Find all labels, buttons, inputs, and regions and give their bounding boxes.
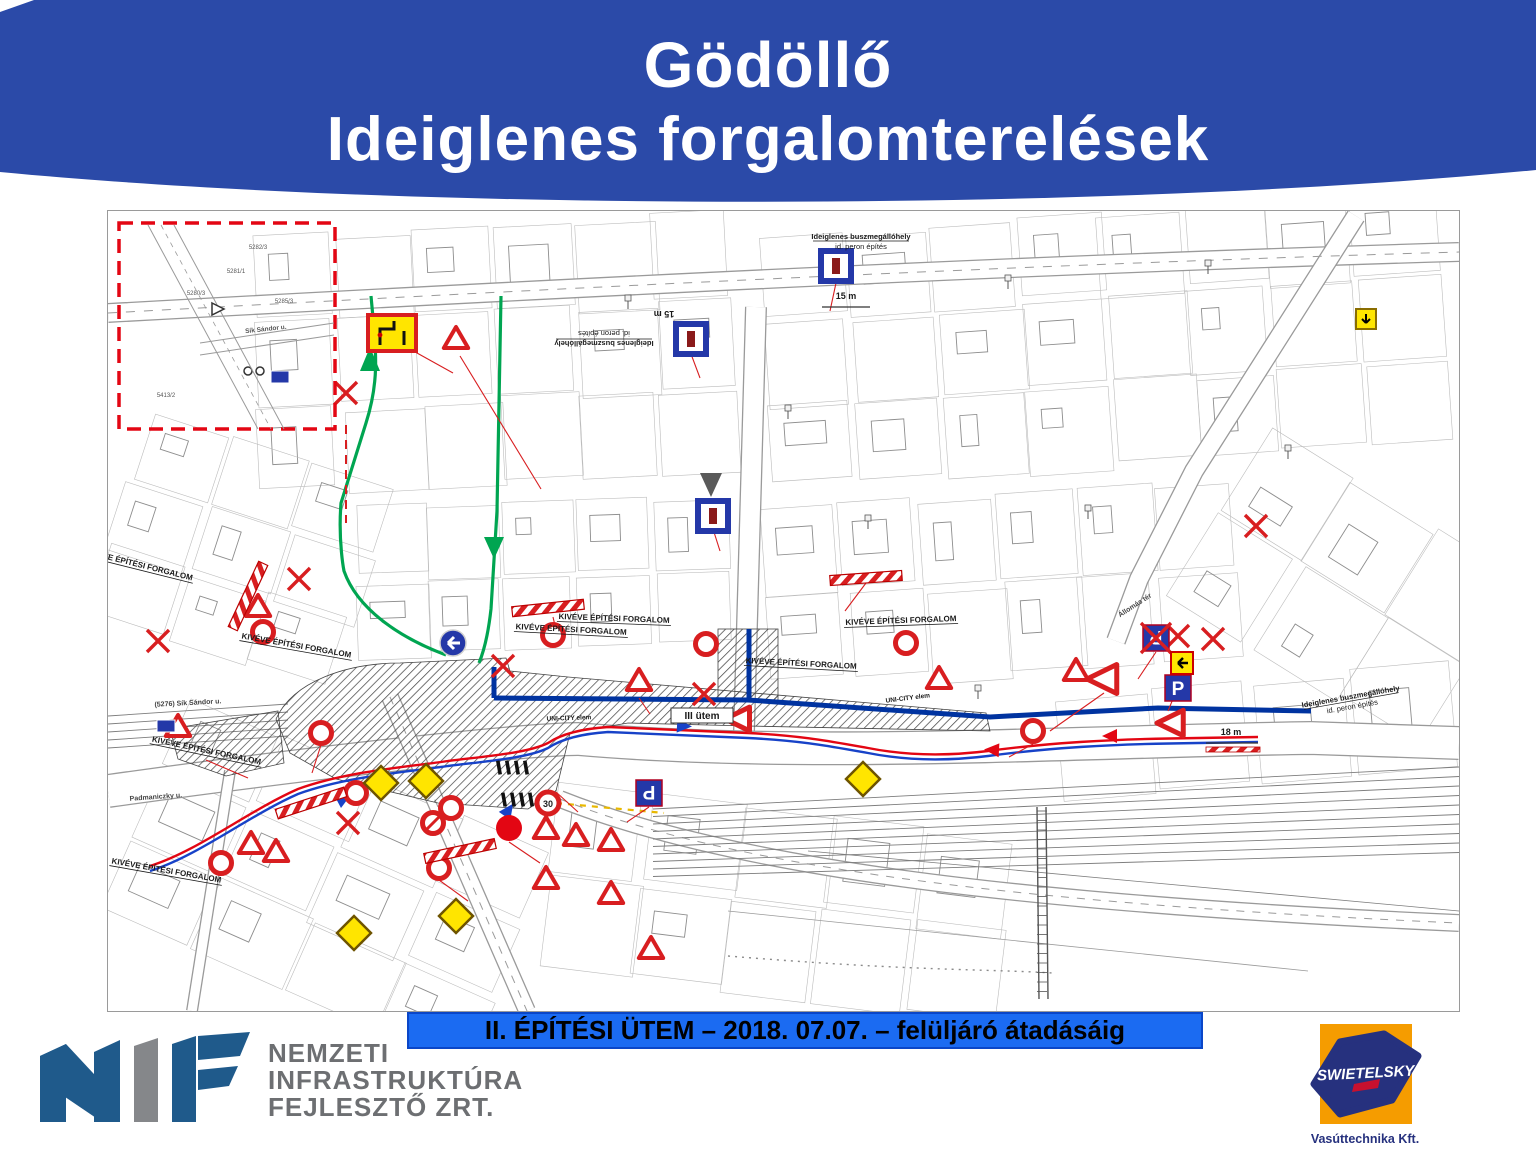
- map-rect: [579, 392, 657, 479]
- map-text: III ütem: [684, 711, 719, 722]
- road-core: [560, 799, 1459, 923]
- map-line: [1046, 807, 1048, 999]
- prohibition-ring-sign: [441, 798, 462, 819]
- inset-detail-box: [119, 223, 335, 429]
- label-unicity: UNI-CITY elem: [885, 692, 930, 704]
- closed-x-mark: [147, 630, 169, 652]
- map-line: [653, 796, 1459, 832]
- small-sign: [1285, 445, 1291, 451]
- label-parcel-number: 5285/3: [275, 299, 294, 305]
- small-sign: [1085, 505, 1091, 511]
- nif-company-name: NEMZETI INFRASTRUKTÚRA FEJLESZTŐ ZRT.: [268, 1040, 523, 1121]
- map-rect: [832, 258, 840, 274]
- map-rect: [1039, 319, 1075, 345]
- priority-road-diamond-sign: [846, 762, 880, 796]
- map-rect: [494, 305, 574, 394]
- closed-x-mark: [1167, 625, 1189, 647]
- map-rect: [212, 436, 310, 528]
- warning-triangle-sign: [564, 824, 588, 845]
- map-rect: [1282, 624, 1314, 657]
- priority-road-diamond-sign: [337, 916, 371, 950]
- map-rect: [213, 526, 241, 561]
- swietelsky-subtitle: Vasúttechnika Kft.: [1303, 1132, 1427, 1146]
- map-rect: [1109, 291, 1193, 379]
- map-rect: [501, 392, 584, 480]
- label-kiveve-epitesi-forgalom: KIVÉVE ÉPÍTÉSI FORGALOM: [844, 614, 958, 627]
- bus-stop-sign: [676, 324, 706, 354]
- map-rect: [658, 391, 741, 476]
- map-text: KIVÉVE ÉPÍTÉSI FORGALOM: [241, 631, 352, 659]
- give-way-arrow-sign: [1087, 665, 1117, 694]
- map-rect: [128, 501, 156, 532]
- map-rect: [852, 519, 888, 554]
- detour-map-sign: [368, 315, 416, 351]
- map-line: [653, 786, 1459, 824]
- label-kiveve-epitesi-forgalom: KIVÉVE ÉPÍTÉSI FORGALOM: [239, 631, 353, 660]
- map-rect: [781, 614, 817, 635]
- nif-letter-f-stem: [172, 1036, 196, 1122]
- detour-route-green: [340, 296, 504, 663]
- map-rect: [709, 508, 717, 524]
- map-rect: [1010, 512, 1033, 544]
- map-rect: [1328, 524, 1377, 575]
- map-rect: [160, 433, 188, 456]
- map-rect: [995, 489, 1078, 579]
- warning-triangle-sign: [239, 832, 263, 853]
- map-text: Ideiglenes buszmegállóhely: [811, 232, 911, 241]
- map-rect: [192, 506, 291, 594]
- nif-letter-f-arm2: [198, 1066, 238, 1090]
- map-text: (5276) Sík Sándor u.: [154, 698, 221, 708]
- map-rect: [405, 986, 437, 1011]
- slide-title-line1: Gödöllő: [0, 28, 1536, 102]
- small-sign: [865, 515, 871, 521]
- prohibition-ring-sign: [896, 633, 917, 654]
- parking-p-glyph: P: [1172, 679, 1185, 700]
- map-rect: [1041, 408, 1063, 428]
- leader-line: [691, 354, 700, 378]
- label-kiveve-epitesi-forgalom: KIVÉVE ÉPÍTÉSI FORGALOM: [557, 612, 671, 625]
- road-core: [1116, 216, 1356, 641]
- road: [560, 799, 1459, 923]
- map-text: KIVÉVE ÉPÍTÉSI FORGALOM: [108, 547, 194, 583]
- map-rect: [119, 223, 335, 429]
- map-rect: [274, 611, 301, 633]
- map-rect: [907, 920, 1006, 1011]
- map-rect: [219, 901, 261, 942]
- small-sign: [785, 405, 791, 411]
- prohibition-ring-sign: [211, 853, 232, 874]
- leader-line: [509, 842, 540, 863]
- slide-title-line2: Ideiglenes forgalomterelések: [0, 104, 1536, 175]
- map-rect: [590, 514, 621, 541]
- map-rect: [760, 505, 838, 598]
- closed-x-mark: [335, 382, 357, 404]
- map-rect: [960, 414, 979, 446]
- label-parcel-number: 5280/3: [187, 291, 206, 297]
- nif-logo: [40, 1032, 250, 1124]
- map-rect: [268, 253, 289, 280]
- closed-x-mark: [1245, 515, 1267, 537]
- map-rect: [336, 875, 390, 919]
- warning-triangle-sign: [627, 669, 651, 690]
- map-rect: [853, 317, 939, 402]
- parcel-block: [108, 409, 398, 694]
- swietelsky-mark: SWIETELSKY: [1304, 1022, 1426, 1126]
- closure-point: [496, 815, 522, 841]
- label-parcel-number: 5413/2: [157, 393, 176, 399]
- map-rect: [415, 312, 492, 398]
- map-line: [653, 834, 1459, 862]
- roadwork-barrier: [830, 571, 903, 586]
- map-rect: [1185, 211, 1269, 284]
- map-rect: [369, 801, 420, 846]
- closed-x-mark: [288, 568, 310, 590]
- map-rect: [687, 331, 695, 347]
- map-text: KIVÉVE ÉPÍTÉSI FORGALOM: [558, 612, 670, 625]
- traffic-diversion-map: 30PPPKIVÉVE ÉPÍTÉSI FORGALOMKIVÉVE ÉPÍTÉ…: [108, 211, 1459, 1011]
- label-sik-sandor-street: (5276) Sík Sándor u.: [154, 698, 221, 708]
- small-sign: [1005, 275, 1011, 281]
- roadwork-barrier: [275, 787, 347, 819]
- map-text: 5281/1: [227, 269, 246, 275]
- map-rect: [426, 247, 454, 272]
- map-rect: [720, 901, 816, 1003]
- label-bus-stop: Ideiglenes buszmegállóhelyid. peron épít…: [554, 329, 654, 348]
- parking-p-glyph: P: [642, 781, 655, 802]
- traffic-map-frame: 30PPPKIVÉVE ÉPÍTÉSI FORGALOMKIVÉVE ÉPÍTÉ…: [107, 210, 1460, 1012]
- map-rect: [784, 420, 827, 445]
- small-sign: [975, 685, 981, 691]
- map-rect: [442, 596, 468, 626]
- map-rect: [579, 308, 662, 398]
- map-text: 15 m: [654, 309, 675, 319]
- map-rect: [575, 221, 660, 314]
- map-rect: [871, 419, 906, 452]
- map-rect: [1023, 299, 1107, 386]
- info-sign: [157, 720, 175, 732]
- map-text: id. peron építés: [578, 329, 630, 338]
- warning-triangle-sign: [1064, 659, 1088, 680]
- map-rect: [1301, 482, 1433, 612]
- map-rect: [1201, 307, 1220, 329]
- warning-triangle-sign: [444, 327, 468, 348]
- bus-stop-sign: [821, 251, 851, 281]
- nif-name-line1: NEMZETI: [268, 1040, 523, 1067]
- map-rect: [1113, 374, 1202, 461]
- road-core: [192, 771, 230, 1011]
- map-rect: [368, 315, 416, 351]
- road-centerline: [560, 799, 1459, 923]
- map-rect: [1254, 567, 1388, 702]
- small-sign: [625, 295, 631, 301]
- phase-banner: II. ÉPÍTÉSI ÜTEM – 2018. 07.07. – felülj…: [407, 1012, 1203, 1049]
- swietelsky-logo: SWIETELSKY Vasúttechnika Kft.: [1303, 1022, 1427, 1146]
- bus-stop-sign: [698, 501, 728, 531]
- map-line: [1037, 807, 1039, 999]
- map-rect: [1249, 487, 1293, 526]
- map-rect: [576, 497, 649, 570]
- map-rect: [933, 522, 953, 561]
- map-rect: [1093, 506, 1113, 534]
- parcel-block: [246, 211, 741, 498]
- nif-letter-i: [134, 1038, 158, 1122]
- map-rect: [764, 319, 848, 410]
- map-rect: [775, 526, 813, 555]
- label-dim-18m: 18 m: [1221, 727, 1242, 737]
- map-text: 5285/3: [275, 299, 294, 305]
- nif-name-line2: INFRASTRUKTÚRA: [268, 1067, 523, 1094]
- warning-triangle-sign: [639, 937, 663, 958]
- label-dim-15m: 15 m: [836, 291, 857, 301]
- map-rect: [1194, 571, 1231, 607]
- map-text: 18 m: [1221, 727, 1242, 737]
- label-parcel-number: 5282/3: [249, 245, 268, 251]
- map-rect: [956, 330, 988, 354]
- map-rect: [425, 403, 507, 490]
- map-line: [653, 815, 1459, 847]
- map-rect: [1166, 513, 1292, 642]
- nif-letter-n-right: [94, 1040, 120, 1122]
- map-circle: [378, 333, 383, 338]
- map-line: [728, 911, 1308, 971]
- presentation-slide: Gödöllő Ideiglenes forgalomterelések 30P…: [0, 0, 1536, 1153]
- map-text: 5282/3: [249, 245, 268, 251]
- label-dim-15m: 15 m: [654, 309, 675, 319]
- map-rect: [1276, 364, 1367, 449]
- map-rect: [1017, 212, 1107, 296]
- priority-road-diamond-sign: [439, 899, 473, 933]
- parking-p-sign: P: [1165, 675, 1191, 701]
- shaded-building: [700, 473, 722, 497]
- map-line: [653, 824, 1459, 854]
- map-rect: [1020, 599, 1042, 633]
- label-parcel-number: 5281/1: [227, 269, 246, 275]
- map-rect: [274, 535, 376, 628]
- speed-30-glyph: 30: [543, 799, 553, 809]
- map-rect: [356, 584, 431, 660]
- leader-line: [1138, 652, 1156, 679]
- mandatory-left-arrow-sign: [1171, 652, 1193, 674]
- map-rect: [943, 393, 1029, 479]
- map-rect: [1025, 386, 1114, 476]
- map-text: UNI-CITY elem: [885, 692, 930, 704]
- map-text: id. peron építés: [835, 242, 887, 251]
- map-text: 5413/2: [157, 393, 176, 399]
- parking-p-sign: P: [636, 780, 662, 806]
- map-rect: [196, 596, 218, 615]
- map-rect: [357, 503, 429, 573]
- label-iii-utem: III ütem: [684, 711, 719, 722]
- green-arrow-down: [484, 537, 504, 559]
- warning-yellow-sign: [1356, 309, 1376, 329]
- prohibition-ring-sign: [696, 634, 717, 655]
- warning-triangle-sign: [927, 667, 951, 688]
- map-line: [653, 767, 1459, 809]
- prohibition-ring-sign: [346, 783, 367, 804]
- map-rect: [1367, 361, 1453, 445]
- map-line: [200, 335, 334, 355]
- map-text: 5280/3: [187, 291, 206, 297]
- map-rect: [540, 875, 643, 977]
- warning-triangle-sign: [264, 840, 288, 861]
- inset-sign-dot: [256, 367, 264, 375]
- map-rect: [1365, 212, 1390, 236]
- nif-name-line3: FEJLESZTŐ ZRT.: [268, 1094, 523, 1121]
- map-text: 15 m: [836, 291, 857, 301]
- road-centerline: [728, 956, 1053, 973]
- nif-letter-f-arm1: [198, 1032, 250, 1060]
- map-rect: [767, 400, 852, 482]
- map-rect: [668, 517, 689, 552]
- map-rect: [918, 499, 997, 585]
- warning-triangle-sign: [599, 882, 623, 903]
- prohibition-ring-sign: [1023, 721, 1044, 742]
- info-sign: [271, 371, 289, 383]
- label-kiveve-epitesi-forgalom: KIVÉVE ÉPÍTÉSI FORGALOM: [108, 546, 195, 583]
- dim-bar: [1206, 747, 1260, 752]
- mandatory-direction-sign: [440, 630, 466, 656]
- closed-x-mark: [1202, 628, 1224, 650]
- road-core: [108, 252, 1459, 313]
- map-rect: [502, 500, 576, 574]
- map-text: Ideiglenes buszmegállóhely: [554, 339, 654, 348]
- map-rect: [1005, 577, 1088, 671]
- map-rect: [516, 518, 532, 535]
- map-rect: [271, 427, 298, 465]
- map-rect: [855, 398, 942, 479]
- small-sign: [1205, 260, 1211, 266]
- leader-line: [845, 583, 866, 611]
- map-rect: [1385, 529, 1459, 662]
- map-rect: [652, 911, 687, 937]
- prohibition-ring-sign: [311, 723, 332, 744]
- warning-triangle-sign: [599, 829, 623, 850]
- map-text: KIVÉVE ÉPÍTÉSI FORGALOM: [845, 614, 957, 627]
